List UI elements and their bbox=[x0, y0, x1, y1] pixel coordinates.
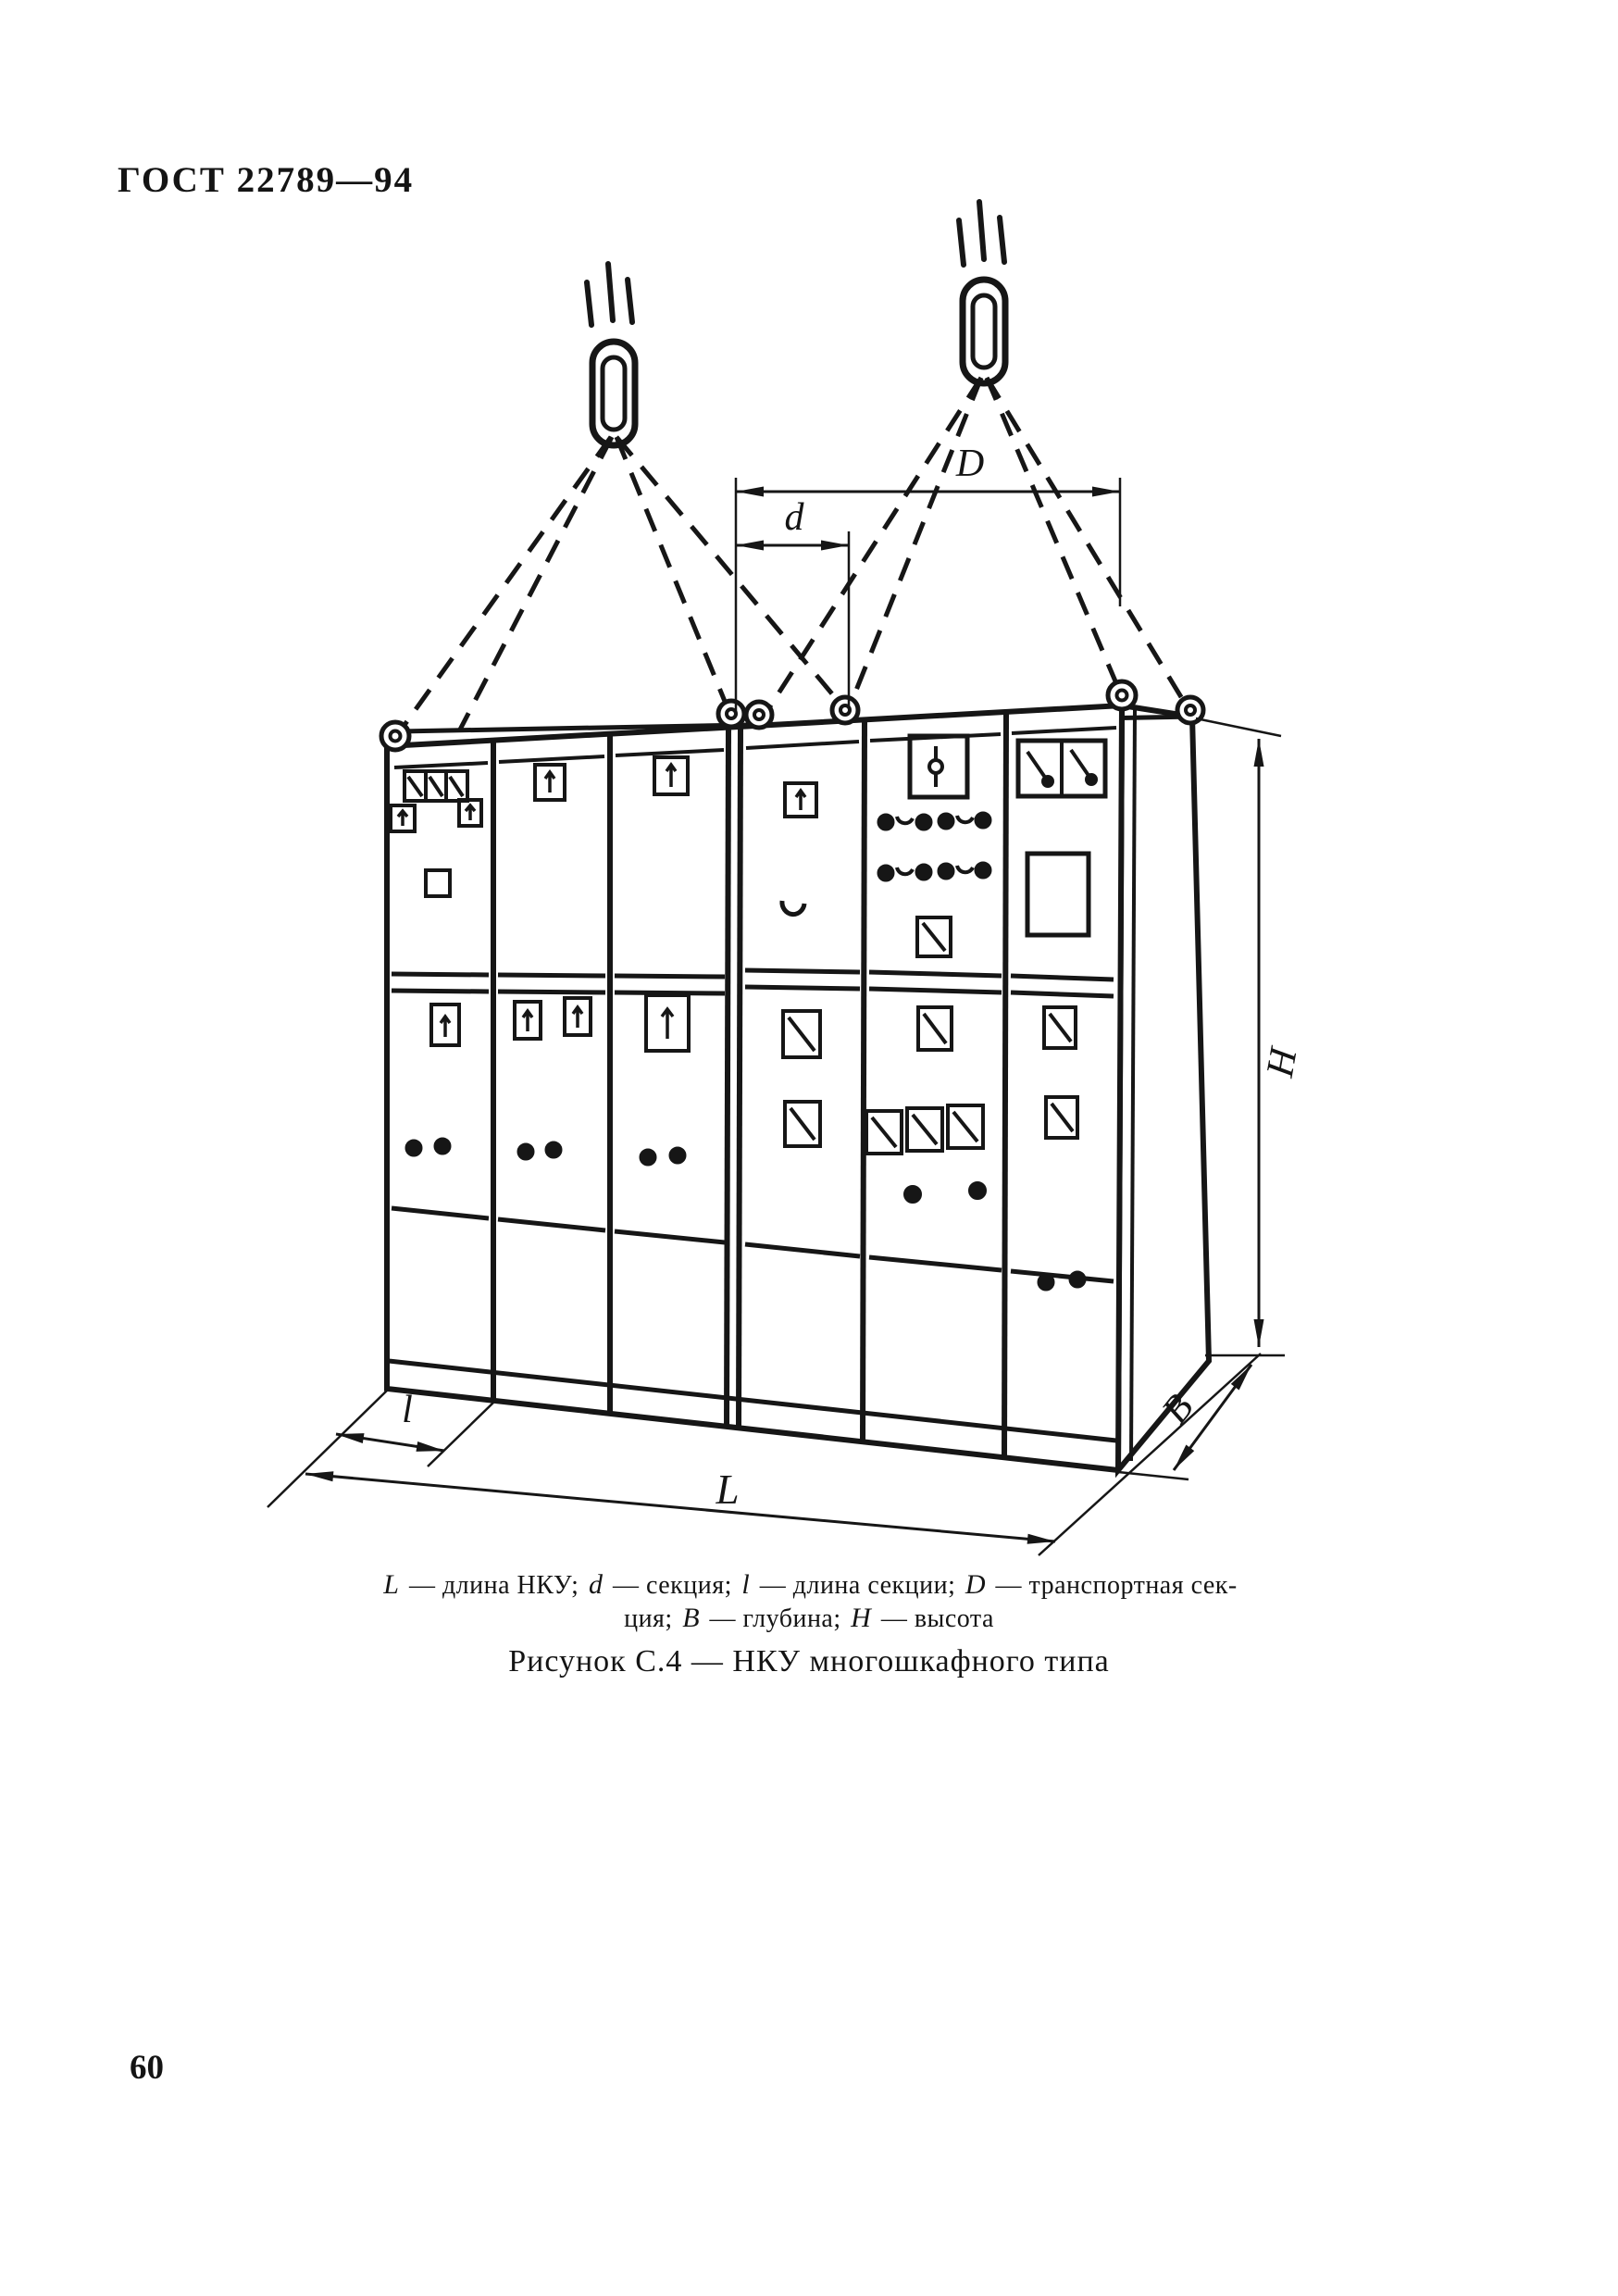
dimension-L: L bbox=[305, 1466, 1055, 1544]
chain-link-right-icon bbox=[963, 280, 1005, 383]
dimension-l: l bbox=[268, 1389, 493, 1507]
figure-title: Рисунок С.4 — НКУ многошкафного типа bbox=[0, 1644, 1618, 1679]
dimension-H: Н bbox=[1196, 718, 1306, 1355]
lifting-eye-icon bbox=[381, 722, 409, 750]
lifting-eye-icon bbox=[718, 701, 744, 727]
figure-caption-legend: L — длина НКУ; d — секция; l — длина сек… bbox=[0, 1568, 1618, 1635]
cabinet-side-face bbox=[1118, 705, 1209, 1470]
crane-hook-right bbox=[959, 202, 1004, 265]
sling-lines bbox=[395, 378, 1189, 738]
chain-link-left-icon bbox=[592, 342, 635, 445]
cabinet-body bbox=[387, 705, 1209, 1470]
lifting-eye-icon bbox=[832, 697, 858, 723]
document-page: ГОСТ 22789—94 bbox=[0, 0, 1618, 2296]
dimension-label-l: l bbox=[402, 1389, 413, 1431]
dimension-label-d: d bbox=[785, 496, 805, 539]
technical-drawing: D d Н В bbox=[0, 0, 1618, 2296]
page-number: 60 bbox=[130, 2048, 164, 2088]
lifting-eye-icon bbox=[746, 702, 772, 728]
cabinet-front-face bbox=[387, 705, 1122, 1470]
dimension-label-D: D bbox=[955, 443, 984, 485]
lifting-eye-icon bbox=[1108, 681, 1136, 709]
dimension-D: D bbox=[736, 443, 1120, 711]
crane-hook-left bbox=[587, 264, 632, 325]
dimension-label-H: Н bbox=[1259, 1042, 1306, 1080]
dimension-label-L: L bbox=[715, 1466, 739, 1513]
